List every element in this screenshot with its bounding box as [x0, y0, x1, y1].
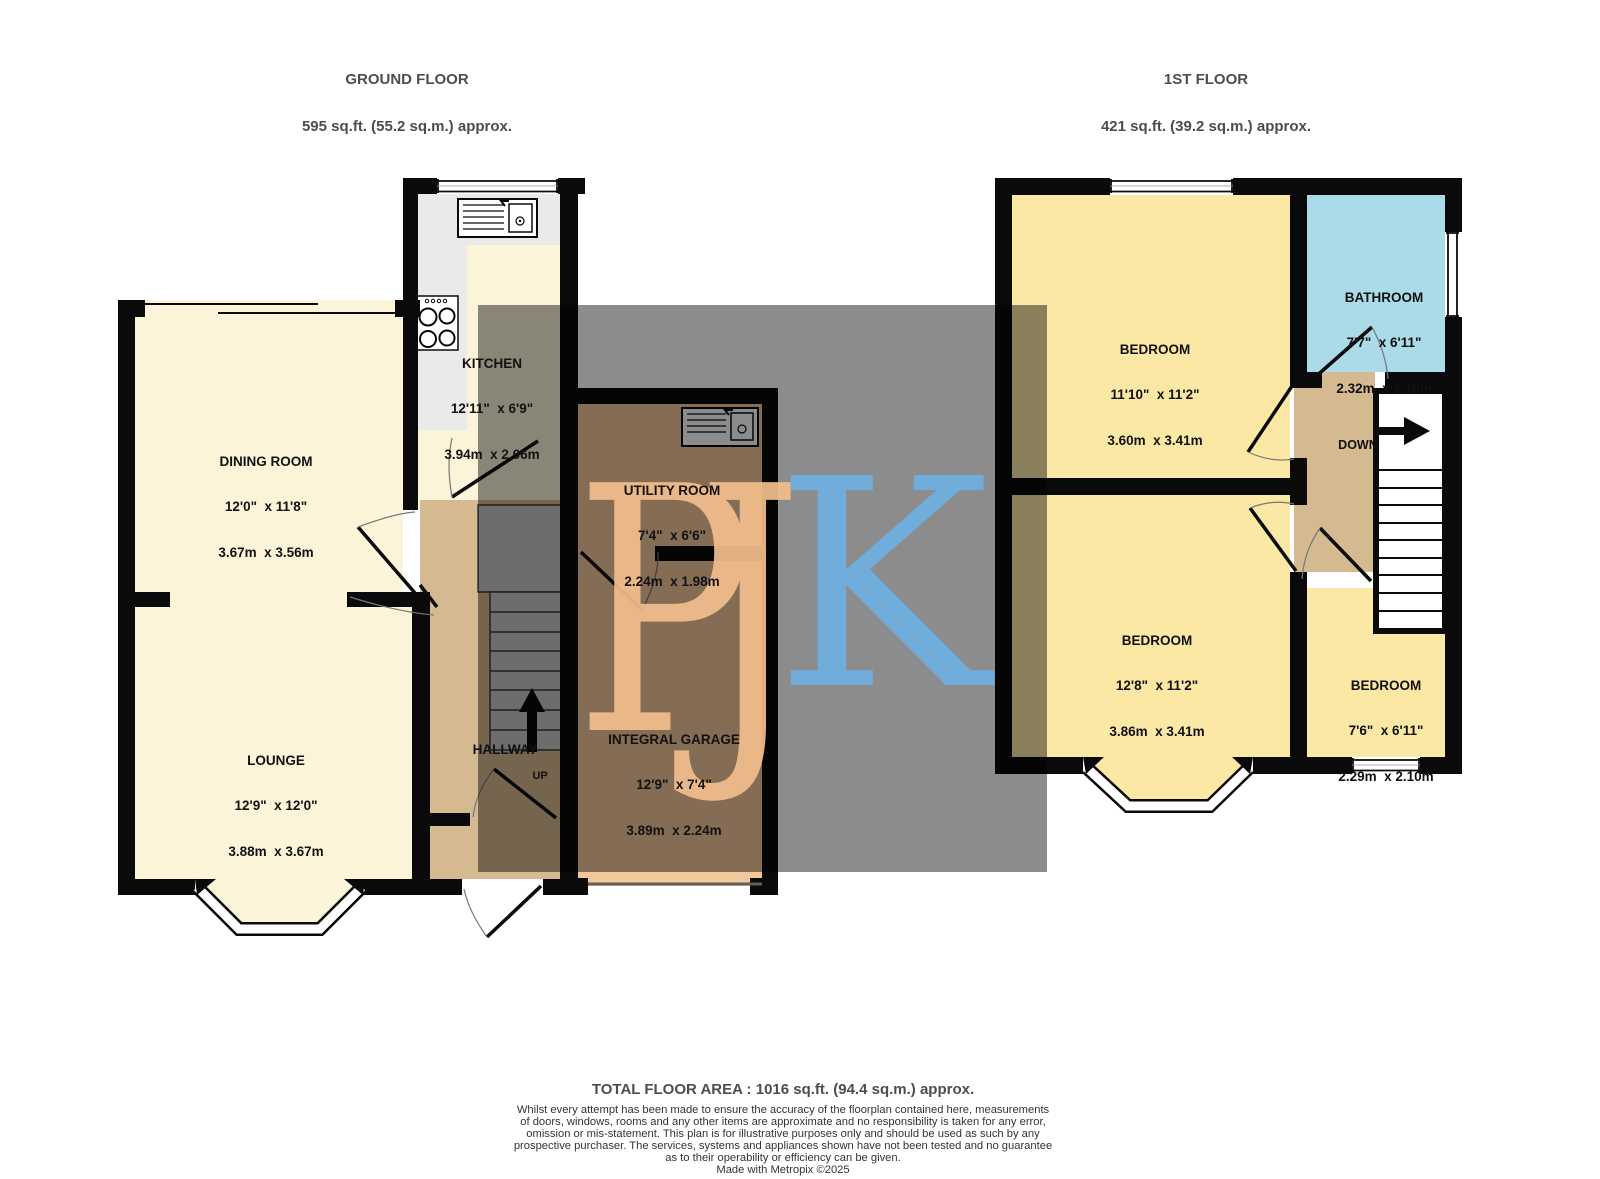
- bedroom2-label: BEDROOM 12'8" x 11'2" 3.86m x 3.41m: [1109, 602, 1204, 770]
- up-text: UP: [532, 770, 547, 782]
- room-dims-imperial: 11'10" x 11'2": [1107, 387, 1202, 402]
- room-dims-imperial: 7'6" x 6'11": [1338, 723, 1433, 738]
- footer: TOTAL FLOOR AREA : 1016 sq.ft. (94.4 sq.…: [233, 1082, 1333, 1176]
- room-name: HALLWAY: [473, 742, 538, 757]
- room-dims-metric: 3.88m x 3.67m: [228, 844, 323, 859]
- kitchen-window: [437, 179, 558, 193]
- first-floor-header: 1ST FLOOR 421 sq.ft. (39.2 sq.m.) approx…: [1101, 41, 1311, 165]
- bathroom-label: BATHROOM 7'7" x 6'11" 2.32m x 2.10m: [1336, 259, 1431, 427]
- room-name: UTILITY ROOM: [624, 483, 721, 498]
- dining-room-label: DINING ROOM 12'0" x 11'8" 3.67m x 3.56m: [218, 423, 313, 591]
- front-door-leaf: [487, 886, 541, 937]
- bathroom-window: [1446, 232, 1459, 317]
- down-text: DOWN: [1338, 438, 1378, 452]
- room-dims-metric: 3.67m x 3.56m: [218, 545, 313, 560]
- room-dims-imperial: 12'9" x 12'0": [228, 798, 323, 813]
- room-dims-metric: 2.32m x 2.10m: [1336, 381, 1431, 396]
- room-dims-imperial: 7'7" x 6'11": [1336, 335, 1431, 350]
- bedroom1-window: [1110, 179, 1233, 193]
- room-name: BEDROOM: [1338, 678, 1433, 693]
- room-name: BEDROOM: [1107, 342, 1202, 357]
- watermark-letter-k: K: [775, 418, 996, 753]
- room-name: INTEGRAL GARAGE: [608, 732, 740, 747]
- room-dims-metric: 3.94m x 2.06m: [444, 447, 539, 462]
- bedroom3-label: BEDROOM 7'6" x 6'11" 2.29m x 2.10m: [1338, 647, 1433, 815]
- disclaimer-line: prospective purchaser. The services, sys…: [233, 1141, 1333, 1153]
- room-name: DINING ROOM: [218, 454, 313, 469]
- watermark: PJ K: [478, 305, 1047, 872]
- down-label: DOWN: [1324, 424, 1377, 466]
- room-name: KITCHEN: [444, 356, 539, 371]
- disclaimer-line: as to their operability or efficiency ca…: [233, 1153, 1333, 1165]
- front-door-arc: [464, 889, 487, 937]
- room-name: LOUNGE: [228, 753, 323, 768]
- metropix-credit: Made with Metropix ©2025: [233, 1165, 1333, 1177]
- ground-floor-header: GROUND FLOOR 595 sq.ft. (55.2 sq.m.) app…: [302, 41, 512, 165]
- room-dims-imperial: 12'11" x 6'9": [444, 401, 539, 416]
- room-dims-metric: 2.24m x 1.98m: [624, 574, 721, 589]
- room-dims-metric: 3.89m x 2.24m: [608, 823, 740, 838]
- up-label: UP: [520, 758, 548, 794]
- ground-floor-area: 595 sq.ft. (55.2 sq.m.) approx.: [302, 119, 512, 135]
- integral-garage-label: INTEGRAL GARAGE 12'9" x 7'4" 3.89m x 2.2…: [608, 701, 740, 869]
- room-dims-metric: 3.86m x 3.41m: [1109, 724, 1204, 739]
- first-floor-title: 1ST FLOOR: [1101, 72, 1311, 88]
- room-dims-imperial: 12'9" x 7'4": [608, 777, 740, 792]
- room-name: BATHROOM: [1336, 290, 1431, 305]
- room-name: BEDROOM: [1109, 633, 1204, 648]
- total-floor-area: TOTAL FLOOR AREA : 1016 sq.ft. (94.4 sq.…: [233, 1082, 1333, 1098]
- floorplan-page: PJ K GROUND FLOOR 595 sq.ft. (55.2 sq.m.…: [0, 0, 1600, 1179]
- room-dims-imperial: 7'4" x 6'6": [624, 528, 721, 543]
- room-dims-metric: 3.60m x 3.41m: [1107, 433, 1202, 448]
- first-floor-area: 421 sq.ft. (39.2 sq.m.) approx.: [1101, 119, 1311, 135]
- lounge-label: LOUNGE 12'9" x 12'0" 3.88m x 3.67m: [228, 722, 323, 890]
- kitchen-sink-icon: [458, 199, 537, 237]
- ground-floor-title: GROUND FLOOR: [302, 72, 512, 88]
- room-dims-imperial: 12'8" x 11'2": [1109, 678, 1204, 693]
- utility-room-label: UTILITY ROOM 7'4" x 6'6" 2.24m x 1.98m: [624, 452, 721, 620]
- room-dims-metric: 2.29m x 2.10m: [1338, 769, 1433, 784]
- disclaimer-line: omission or mis-statement. This plan is …: [233, 1129, 1333, 1141]
- bedroom1-label: BEDROOM 11'10" x 11'2" 3.60m x 3.41m: [1107, 311, 1202, 479]
- kitchen-label: KITCHEN 12'11" x 6'9" 3.94m x 2.06m: [444, 325, 539, 493]
- room-dims-imperial: 12'0" x 11'8": [218, 499, 313, 514]
